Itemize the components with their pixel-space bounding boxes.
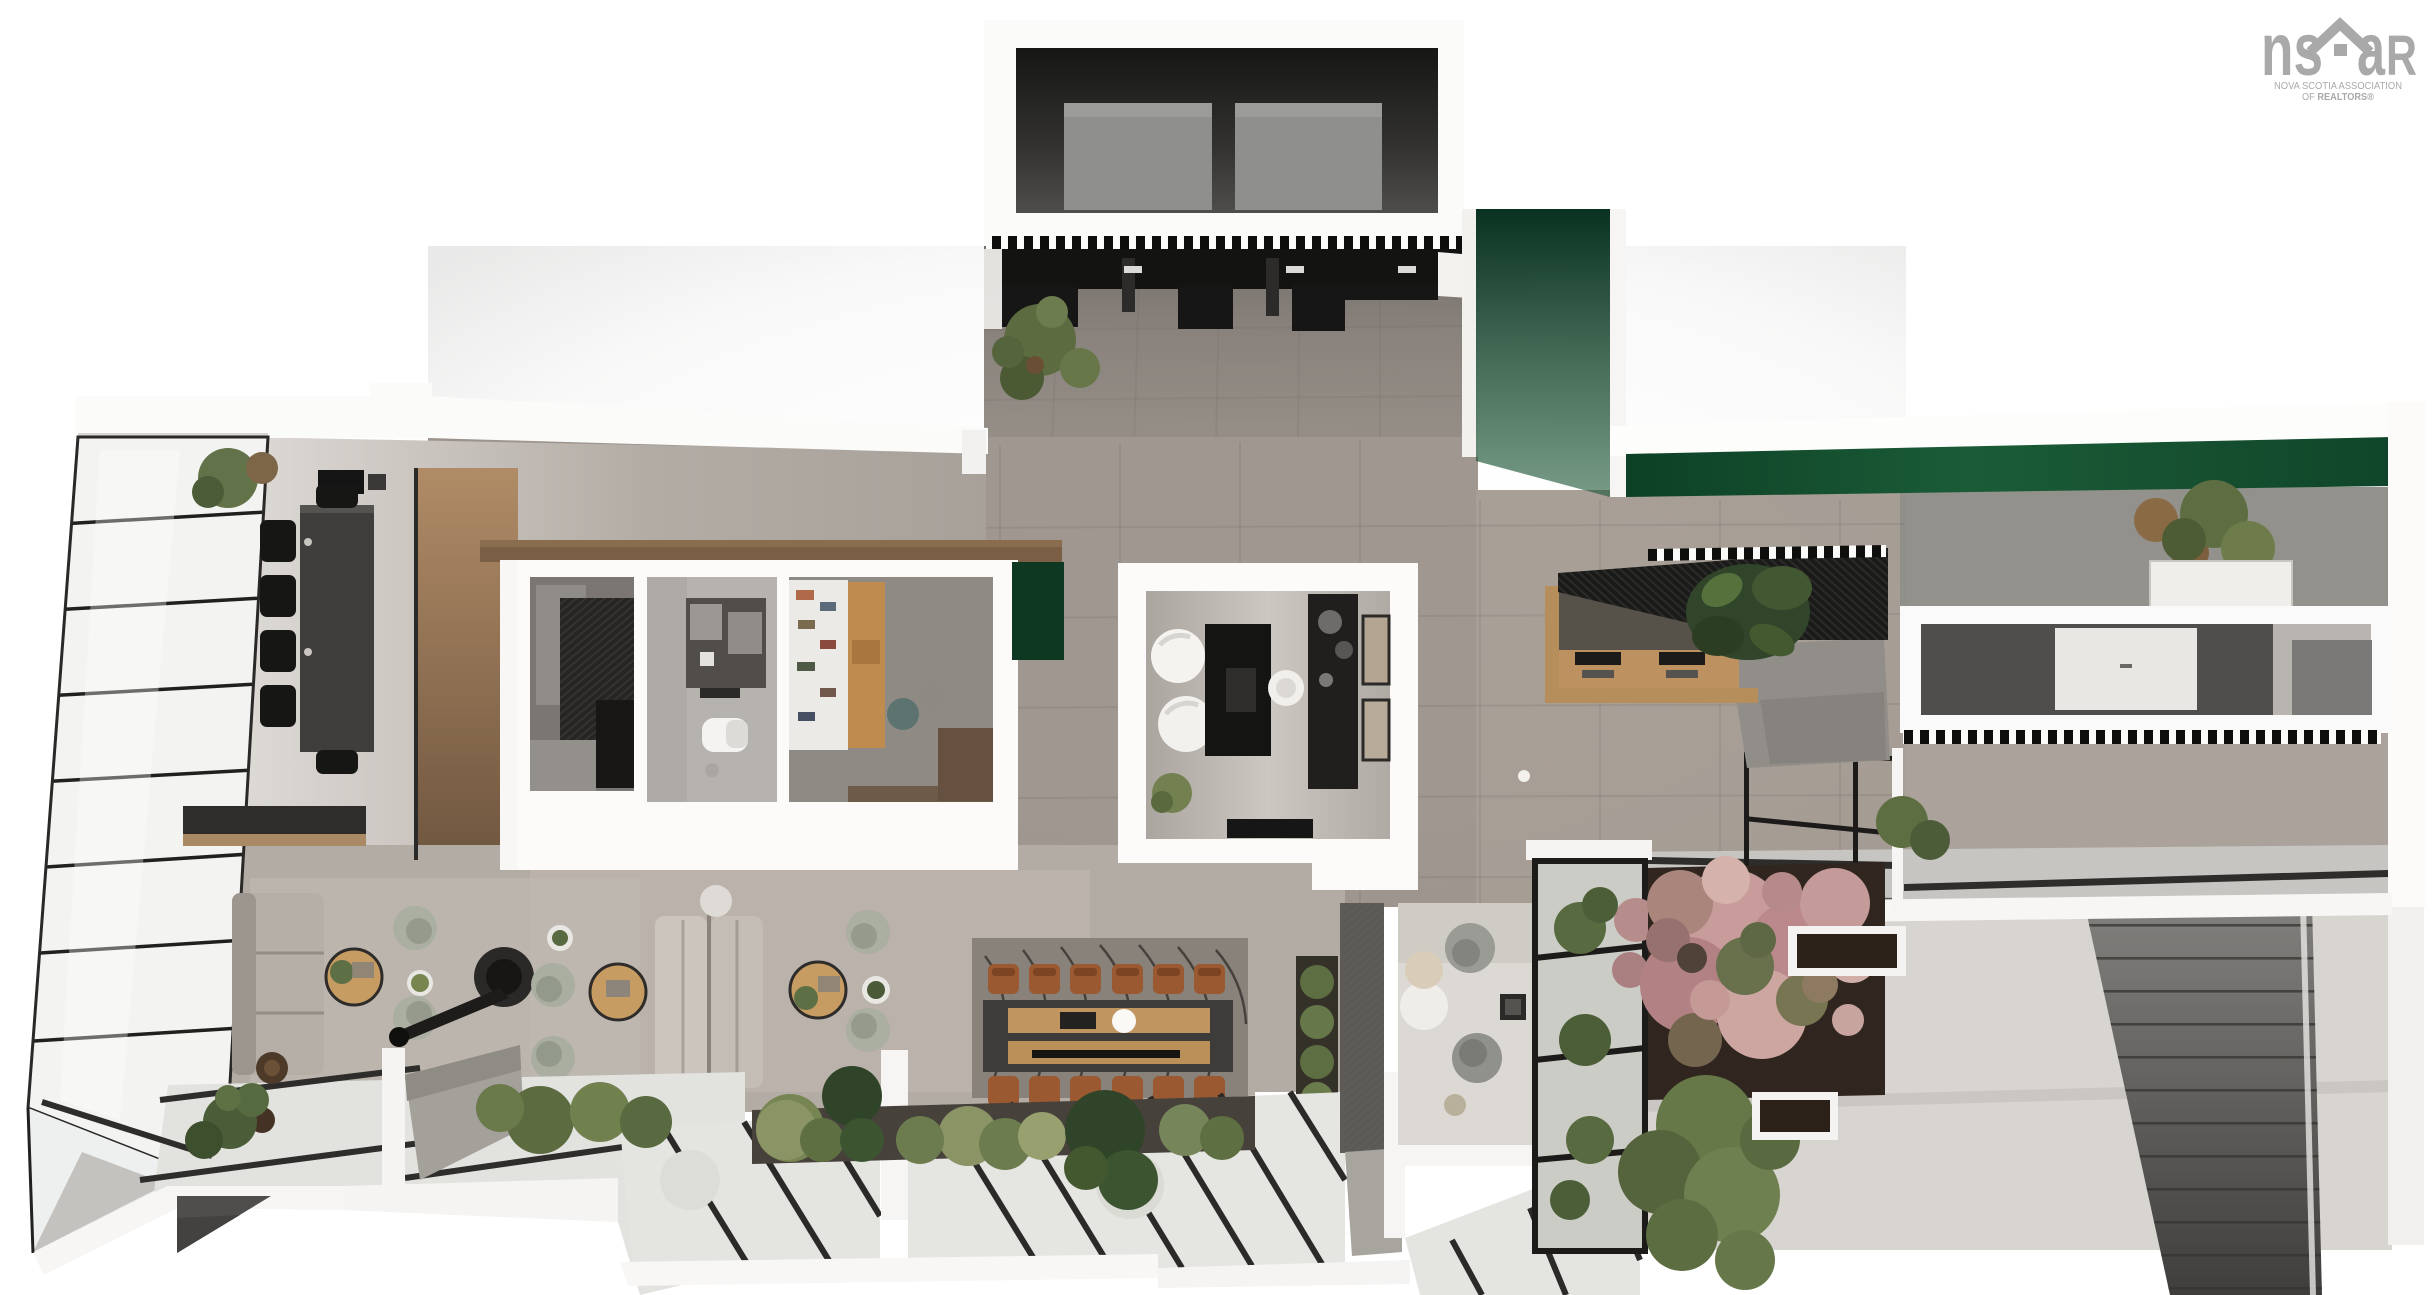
svg-text:R: R: [2386, 24, 2417, 88]
svg-text:NOVA SCOTIA ASSOCIATION: NOVA SCOTIA ASSOCIATION: [2274, 81, 2402, 92]
svg-text:OF REALTORS®: OF REALTORS®: [2302, 92, 2375, 103]
